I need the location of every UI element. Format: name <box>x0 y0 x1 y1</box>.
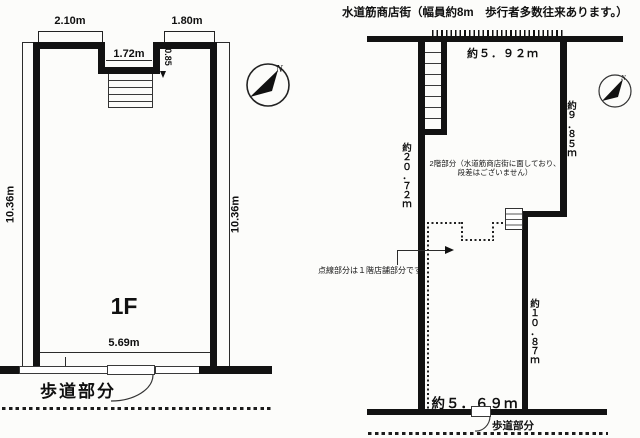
floorplan-canvas: 2.10m 1.80m 1.72m 0.85 10.36m 10.36m 1F … <box>0 0 640 438</box>
dim-label-right-lower-2f: 約１０．８７ｍ <box>529 300 541 366</box>
north-needle-small-icon <box>602 79 623 101</box>
note-2f-line1: 2階部分（水道筋商店街に面しており、 <box>430 159 561 168</box>
wall-left-2f <box>418 36 425 415</box>
entrance-door-leaf <box>107 365 155 375</box>
street-title: 水道筋商店街（幅員約8m 歩行者多数往来あります。） <box>342 4 628 20</box>
stairwell-wall-right <box>441 36 447 135</box>
note-dotted-line: 点線部分は１階店舗部分です。 <box>318 266 429 275</box>
door-swing-arc-2f <box>473 415 493 433</box>
dotted-1f-outline-top1 <box>427 222 463 224</box>
note-2f-line2: 段差はございません） <box>458 168 533 177</box>
note-2f: 2階部分（水道筋商店街に面しており、 段差はございません） <box>424 159 566 177</box>
dotted-1f-outline-notch-right <box>492 222 494 241</box>
wall-right-lower-2f <box>522 211 528 415</box>
north-label-small: N <box>620 74 626 82</box>
dim-label-top-2f: 約５．９２ｍ <box>455 45 551 61</box>
entrance-door-leaf-2f <box>471 406 491 417</box>
dim-label-right-upper-2f: 約９．８５ｍ <box>566 102 578 158</box>
leader-arrow-icon <box>445 246 454 254</box>
leader-line-h <box>397 250 446 251</box>
dim-label-left-2f: 約２０．７２ｍ <box>401 144 413 210</box>
arcade-hatch-band <box>432 30 563 37</box>
dotted-1f-outline-notch-bottom <box>461 239 494 241</box>
stairs-2f <box>425 42 441 129</box>
wall-jog-2f <box>522 211 567 217</box>
sidewalk-label-right: 歩道部分 <box>492 418 534 433</box>
right-floor-plan: 水道筋商店街（幅員約8m 歩行者多数往来あります。） 約５．９２ｍ 約９．８５ｍ… <box>0 0 640 438</box>
step-box <box>505 208 523 230</box>
leader-line-v <box>397 250 398 265</box>
street-boundary-dotted-right <box>368 432 608 435</box>
stairwell-wall-bottom <box>425 129 441 135</box>
compass-icon-small: N <box>596 71 636 111</box>
